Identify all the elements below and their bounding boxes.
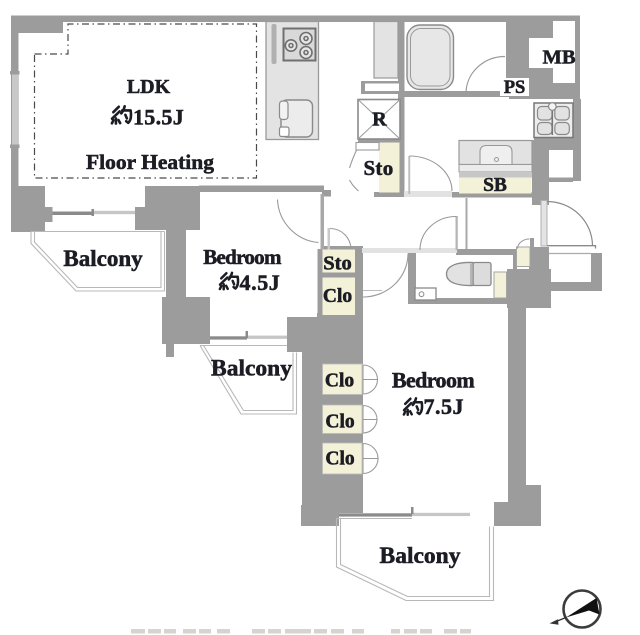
svg-text:Clo: Clo (325, 449, 354, 470)
svg-text:7.5J: 7.5J (424, 394, 465, 419)
svg-text:Bedroom: Bedroom (203, 245, 282, 269)
svg-text:Clo: Clo (325, 371, 354, 392)
svg-text:Clo: Clo (323, 286, 352, 307)
svg-text:Sto: Sto (323, 253, 351, 275)
svg-text:Balcony: Balcony (211, 356, 292, 382)
svg-text:LDK: LDK (127, 76, 171, 98)
svg-text:Floor Heating: Floor Heating (86, 150, 214, 174)
svg-text:R: R (372, 109, 387, 131)
svg-text:4.5J: 4.5J (240, 270, 281, 295)
svg-text:Balcony: Balcony (63, 246, 143, 271)
svg-text:Clo: Clo (325, 412, 354, 433)
svg-text:Balcony: Balcony (380, 543, 461, 569)
svg-text:15.5J: 15.5J (133, 105, 184, 130)
svg-text:Bedroom: Bedroom (392, 368, 474, 393)
svg-text:SB: SB (483, 175, 507, 196)
svg-text:MB: MB (542, 47, 575, 69)
svg-text:PS: PS (504, 78, 526, 98)
svg-text:Sto: Sto (363, 156, 393, 180)
